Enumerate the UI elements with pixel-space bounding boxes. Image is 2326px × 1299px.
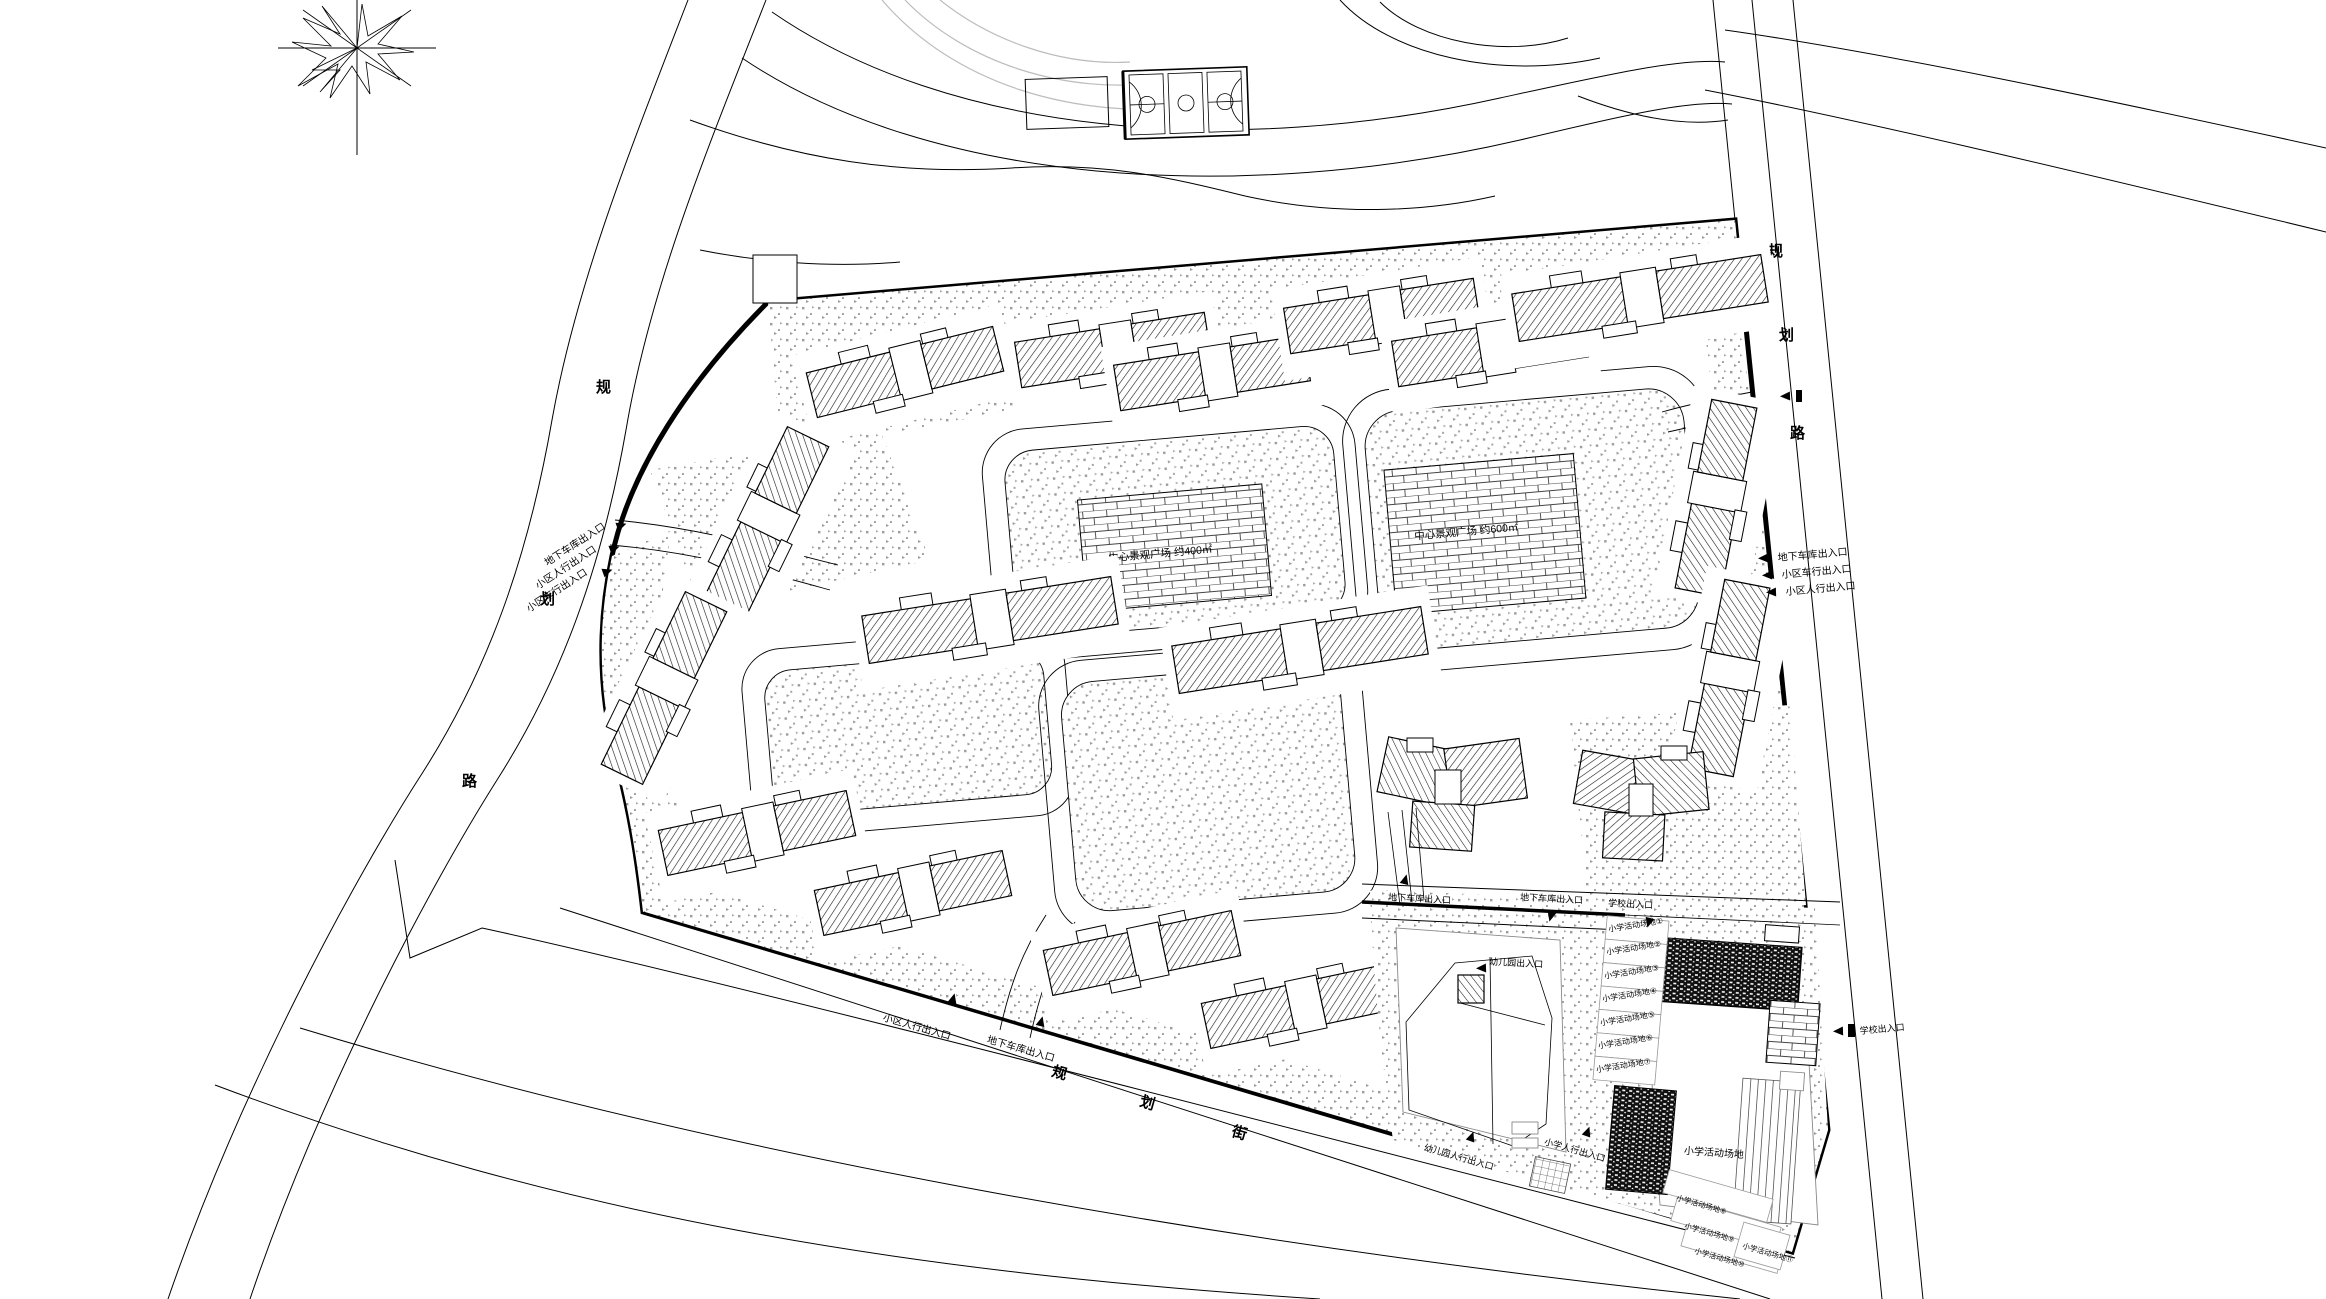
gate-tick [1796, 390, 1802, 402]
site-plan-sheet: 规 划 路 规 划 路 规 划 街 [0, 0, 2326, 1299]
west-road-name-char: 路 [462, 772, 478, 790]
entrance-label-school-east: 学校出入口 [1859, 1021, 1905, 1036]
basketball-courts [1123, 67, 1249, 139]
park-path [1012, 167, 1245, 196]
east-road-name-char: 路 [1790, 424, 1806, 442]
northeast-road-edge [1705, 90, 2326, 232]
school-paved-plaza [1766, 1000, 1820, 1065]
entrance-label-east: 小区人行出入口 [1785, 579, 1856, 598]
park-path [1380, 2, 1568, 47]
park-path [1578, 96, 1728, 122]
small-structure [1779, 1071, 1804, 1091]
small-annex-building [753, 255, 797, 303]
entrance-arrow-icon [1833, 1027, 1843, 1036]
east-road-name-char: 划 [1779, 326, 1794, 344]
park-path [1245, 196, 1495, 210]
park-area [690, 0, 1732, 264]
park-path [700, 250, 900, 264]
gate-tick [1848, 1024, 1855, 1037]
site-plan-canvas: 规 划 路 规 划 路 规 划 街 [0, 0, 2326, 1299]
east-road-west-edge [1713, 0, 1735, 220]
park-contour-line [940, 0, 1130, 62]
kindergarten-hatched-wing [1458, 975, 1484, 1003]
wind-rose-icon [278, 0, 436, 155]
west-road-name-char: 规 [596, 379, 611, 396]
school-building-west [1606, 1086, 1677, 1195]
entrance-label-east: 地下车库出入口 [1777, 545, 1848, 564]
park-path [1340, 0, 1600, 66]
south-road-name-char: 规 [1050, 1063, 1069, 1083]
entrance-label-east: 小区车行出入口 [1781, 562, 1852, 581]
park-path [690, 120, 1012, 170]
south-road-outer-line [215, 1085, 1320, 1299]
northeast-road-edge [1725, 30, 2326, 148]
entrance-arrow-icon [1780, 392, 1790, 401]
